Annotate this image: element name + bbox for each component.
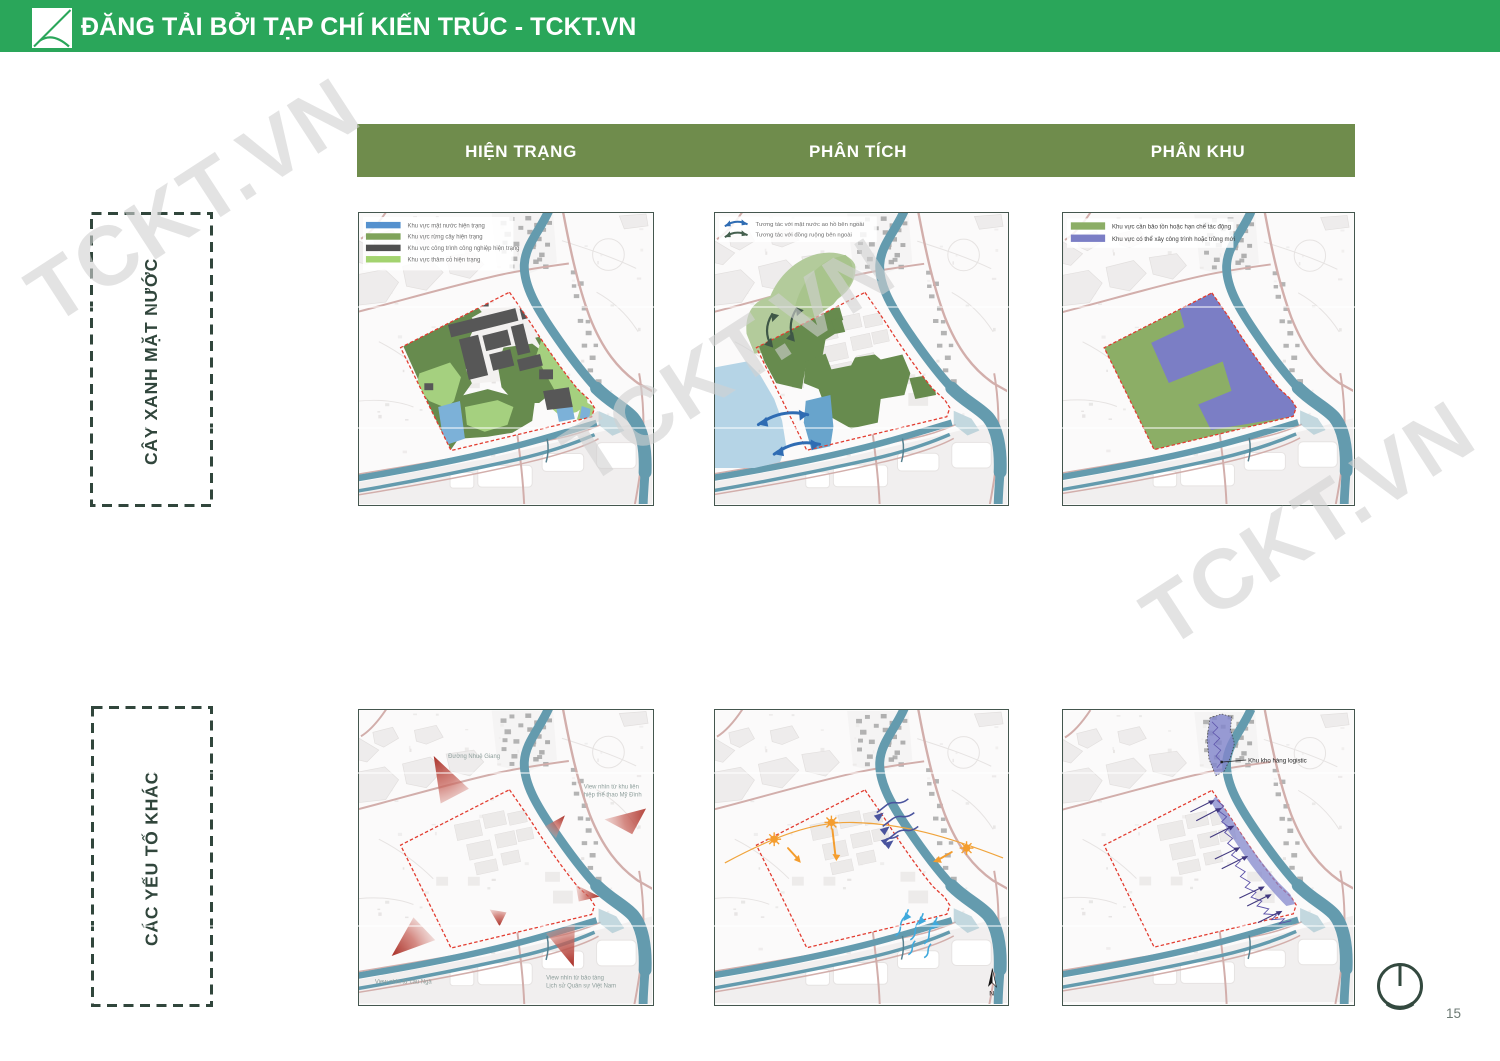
svg-text:View nhìn từ bảo tàng: View nhìn từ bảo tàng	[546, 976, 604, 982]
svg-text:Khu vực thảm cỏ hiện trạng: Khu vực thảm cỏ hiện trạng	[408, 257, 481, 264]
svg-text:hiệp thể thao Mỹ Đình: hiệp thể thao Mỹ Đình	[584, 792, 642, 799]
svg-text:N: N	[989, 990, 994, 997]
svg-text:Khu vực công trình công nghiệp: Khu vực công trình công nghiệp hiện trạn…	[408, 246, 520, 252]
svg-text:Lịch sử Quân sự Việt Nam: Lịch sử Quân sự Việt Nam	[546, 983, 616, 990]
svg-text:View nhìn từ khu liên: View nhìn từ khu liên	[584, 785, 639, 791]
svg-text:Khu kho hàng logistic: Khu kho hàng logistic	[1248, 757, 1307, 764]
svg-text:Khu vực mặt nước hiện trạng: Khu vực mặt nước hiện trạng	[408, 223, 485, 229]
svg-text:Khu vực có thể xây công trình: Khu vực có thể xây công trình hoặc trồng…	[1112, 236, 1235, 243]
svg-text:Khu vực cần bảo tồn hoặc hạn c: Khu vực cần bảo tồn hoặc hạn chế tác độn…	[1112, 225, 1231, 231]
svg-text:View nhìn từ cầu Ngà: View nhìn từ cầu Ngà	[375, 980, 433, 986]
svg-text:Đường Nhuệ Giang: Đường Nhuệ Giang	[448, 754, 500, 760]
svg-text:Khu vực rừng cây hiện trạng: Khu vực rừng cây hiện trạng	[408, 235, 483, 241]
